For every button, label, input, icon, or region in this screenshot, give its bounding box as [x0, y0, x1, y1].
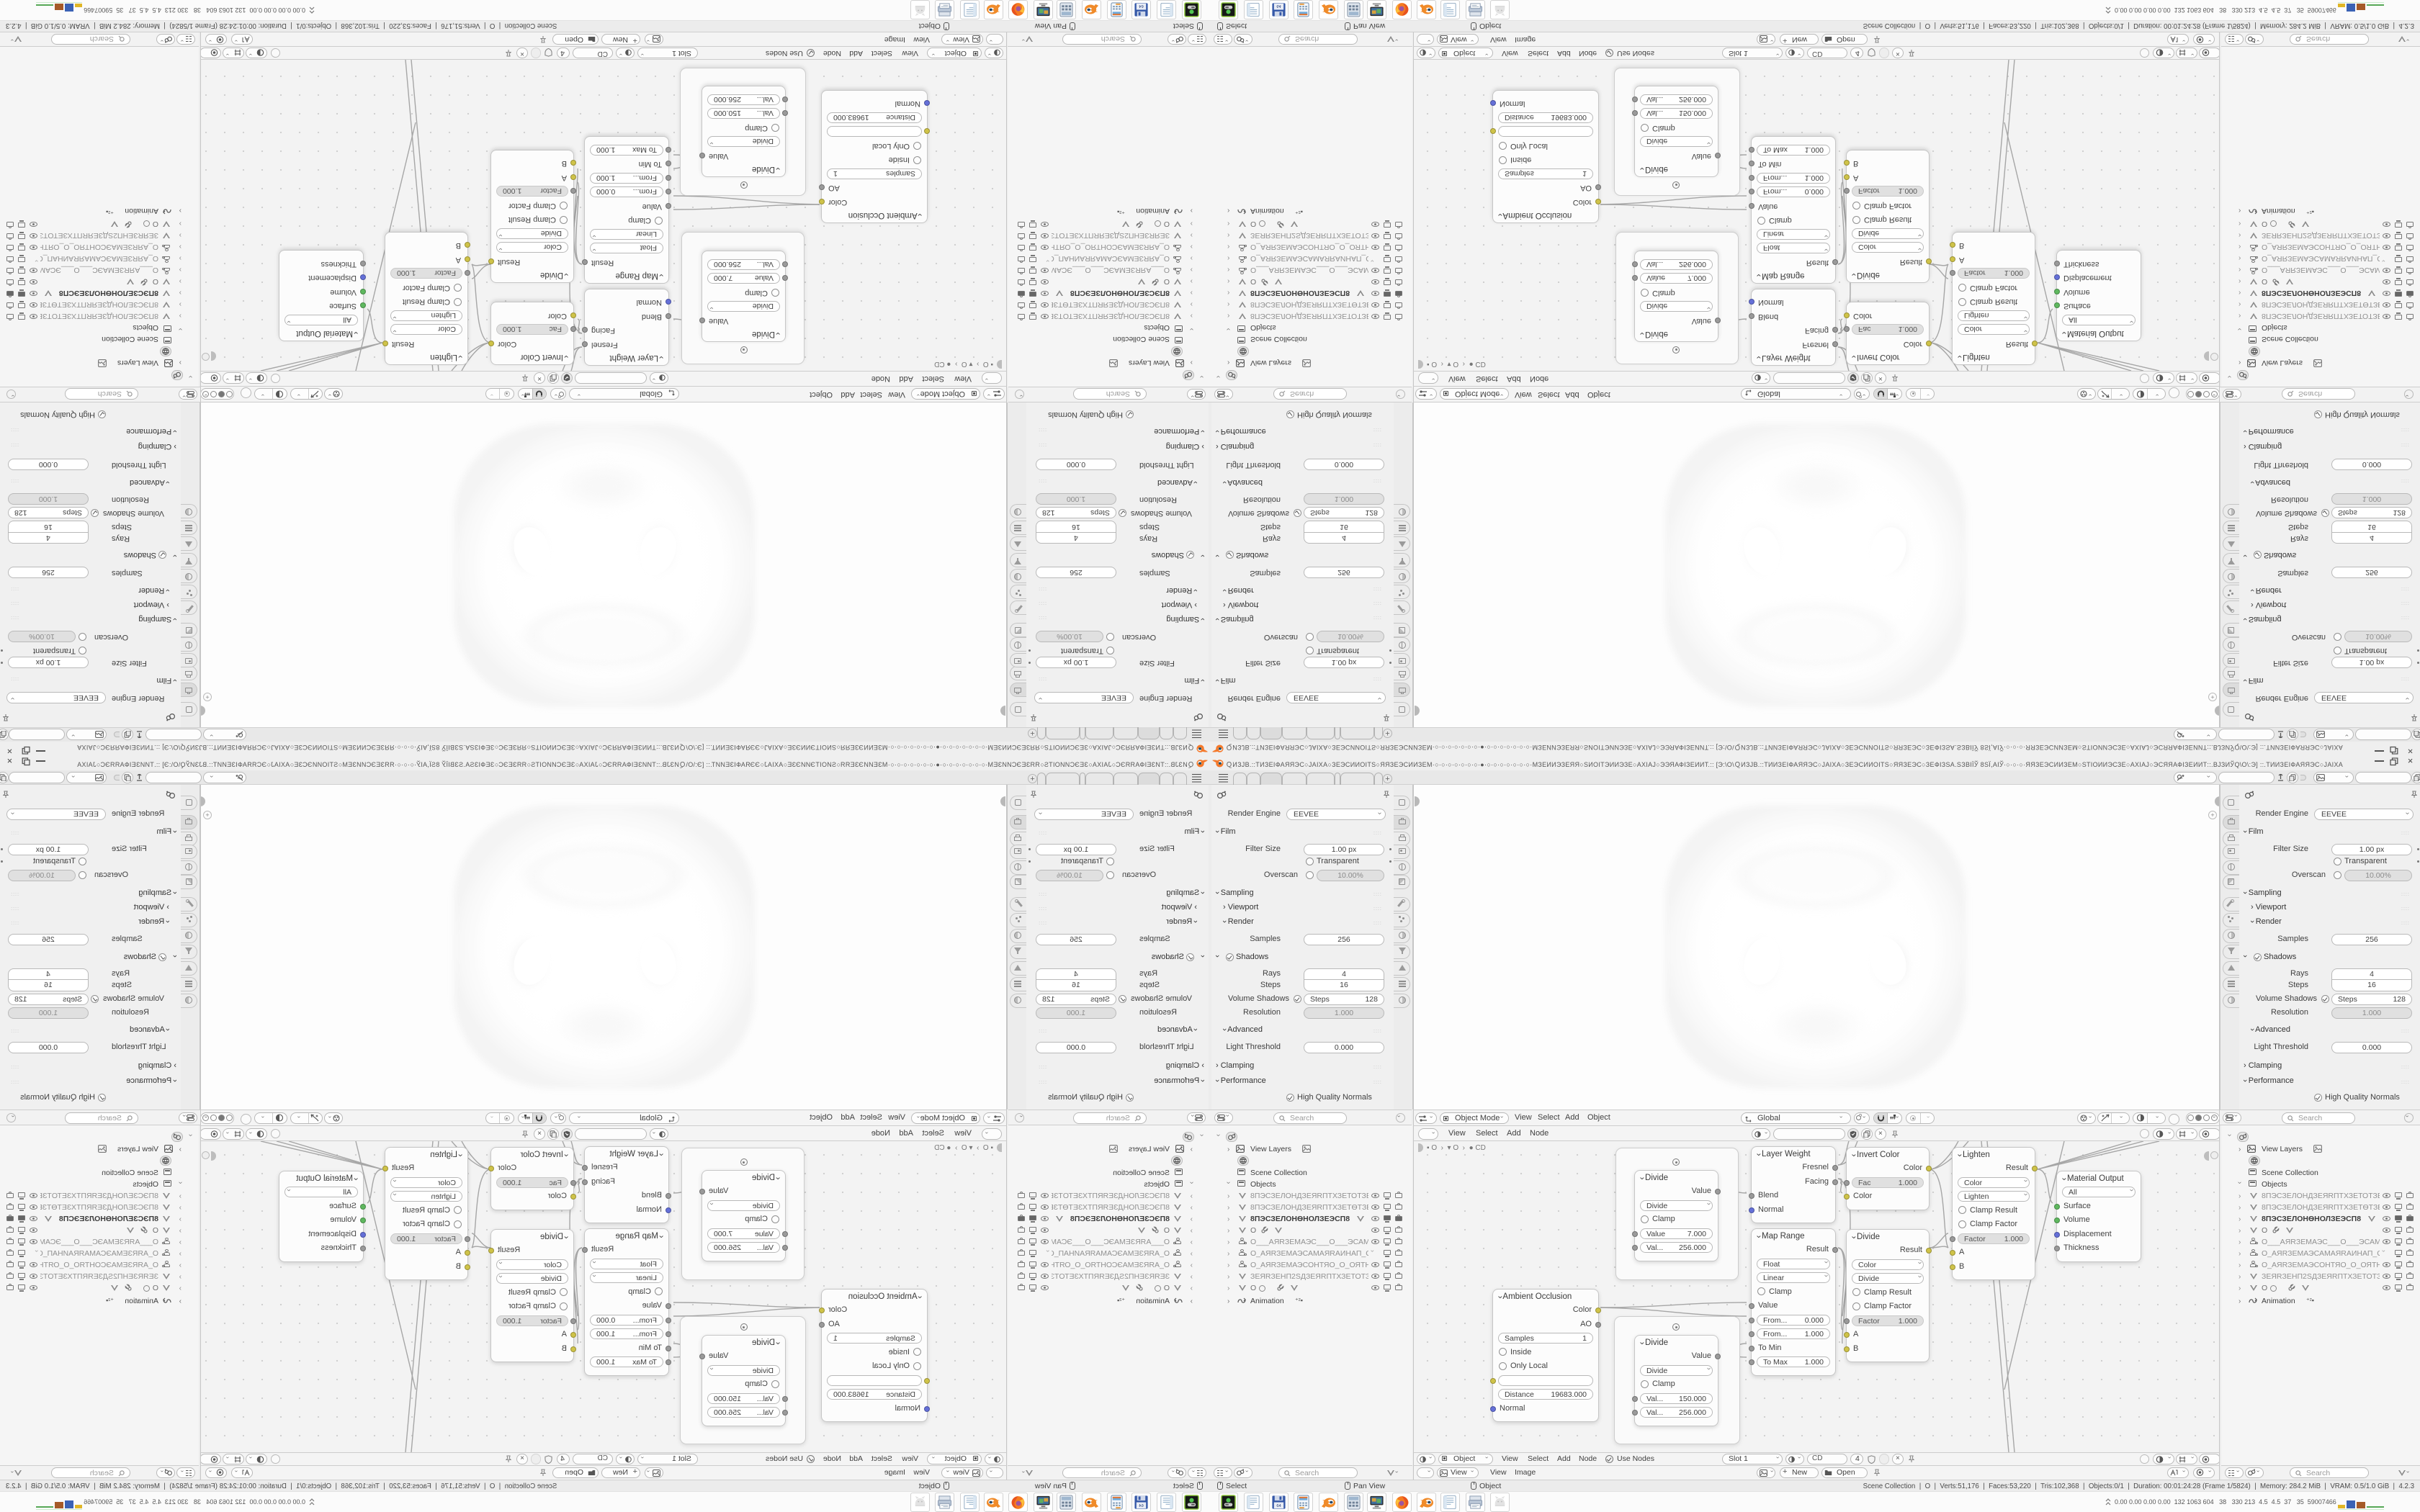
svg-text:64: 64 [1276, 1504, 1281, 1508]
svg-text:64: 64 [1139, 1504, 1144, 1508]
svg-text:64: 64 [1276, 4, 1281, 8]
svg-text:64: 64 [1139, 4, 1144, 8]
